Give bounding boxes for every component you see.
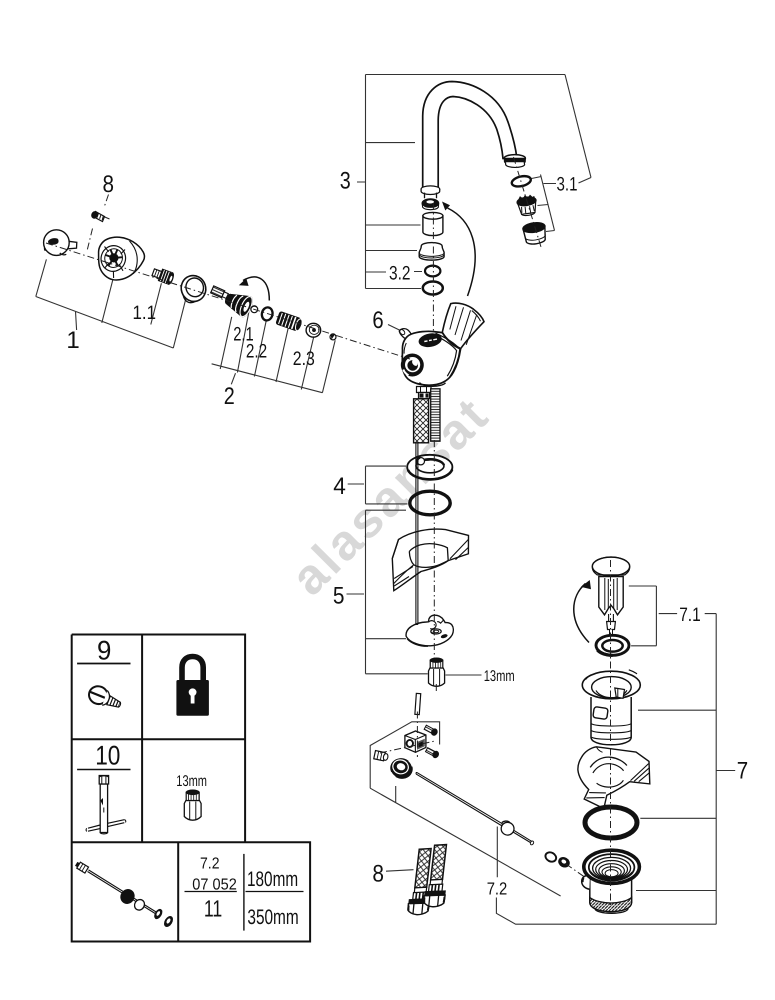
svg-text:13mm: 13mm bbox=[484, 668, 515, 685]
svg-text:180mm: 180mm bbox=[247, 868, 298, 891]
svg-text:3.1: 3.1 bbox=[557, 174, 578, 196]
svg-text:8: 8 bbox=[372, 860, 384, 887]
svg-text:2.2: 2.2 bbox=[246, 340, 267, 362]
svg-text:11: 11 bbox=[204, 895, 222, 921]
svg-text:07 052: 07 052 bbox=[192, 876, 237, 893]
svg-text:7.2: 7.2 bbox=[200, 855, 220, 872]
svg-text:4: 4 bbox=[333, 473, 346, 500]
svg-text:7: 7 bbox=[737, 758, 748, 785]
svg-text:3: 3 bbox=[340, 168, 351, 195]
svg-text:6: 6 bbox=[372, 307, 383, 334]
svg-text:5: 5 bbox=[333, 583, 345, 610]
svg-text:350mm: 350mm bbox=[247, 906, 298, 929]
svg-text:8: 8 bbox=[103, 171, 115, 198]
svg-text:3.2: 3.2 bbox=[389, 263, 411, 285]
svg-text:9: 9 bbox=[97, 636, 111, 666]
svg-text:7.2: 7.2 bbox=[487, 879, 508, 899]
svg-text:7.1: 7.1 bbox=[679, 604, 701, 626]
svg-text:1: 1 bbox=[66, 327, 79, 354]
svg-text:1.1: 1.1 bbox=[133, 302, 157, 324]
svg-text:13mm: 13mm bbox=[176, 773, 207, 790]
svg-text:10: 10 bbox=[95, 741, 120, 771]
svg-text:2.3: 2.3 bbox=[293, 348, 315, 370]
svg-text:2: 2 bbox=[224, 383, 235, 410]
